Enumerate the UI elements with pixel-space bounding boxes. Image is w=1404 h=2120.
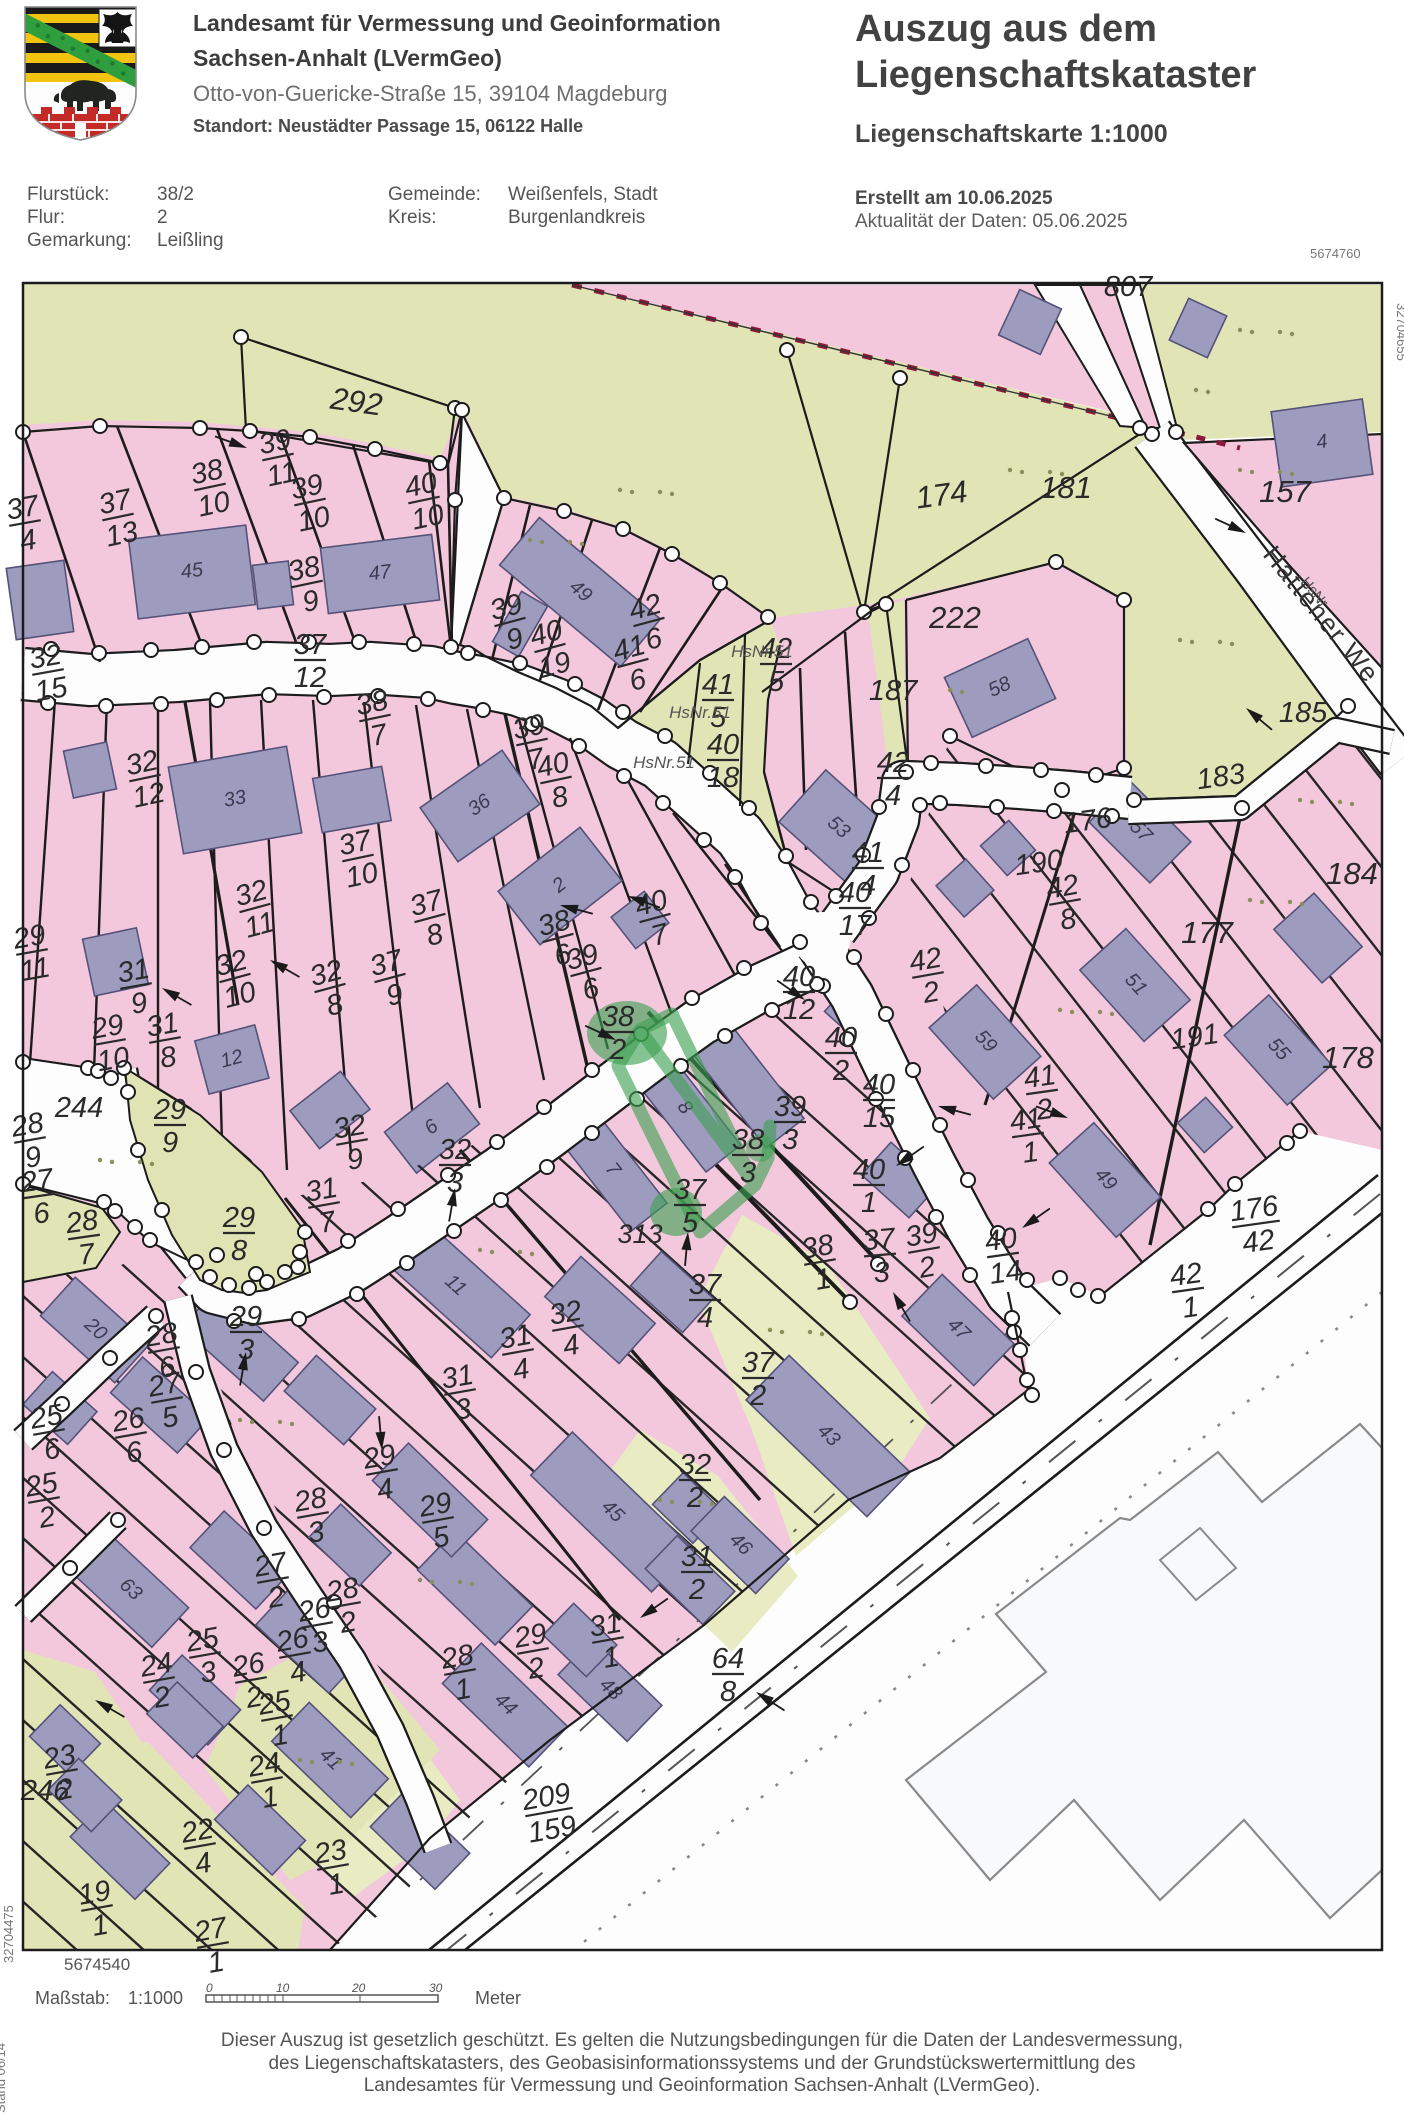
svg-text:HsNr.51: HsNr.51 [669, 703, 731, 722]
svg-text:14: 14 [987, 1255, 1023, 1291]
svg-text:2: 2 [832, 1055, 849, 1087]
svg-text:15: 15 [863, 1102, 896, 1134]
svg-text:807: 807 [1104, 271, 1154, 303]
svg-text:5: 5 [682, 1207, 699, 1239]
svg-text:10: 10 [276, 1982, 290, 1995]
svg-text:10: 10 [295, 501, 333, 539]
svg-text:37: 37 [674, 1174, 708, 1206]
svg-text:33: 33 [222, 786, 248, 812]
svg-text:31: 31 [681, 1541, 713, 1573]
svg-text:47: 47 [367, 561, 393, 586]
svg-text:64: 64 [712, 1643, 744, 1675]
svg-text:177: 177 [1181, 915, 1234, 950]
svg-text:222: 222 [928, 600, 981, 635]
svg-text:2: 2 [749, 1380, 766, 1412]
svg-text:174: 174 [913, 474, 969, 516]
svg-text:32: 32 [679, 1449, 711, 1481]
svg-text:12: 12 [294, 662, 326, 694]
svg-text:40: 40 [839, 877, 871, 909]
svg-text:3: 3 [740, 1157, 756, 1189]
svg-text:10: 10 [195, 486, 233, 524]
svg-text:3: 3 [872, 1256, 891, 1289]
svg-text:HsNr.51: HsNr.51 [633, 753, 695, 772]
svg-text:41: 41 [702, 669, 734, 701]
svg-text:8: 8 [720, 1676, 736, 1708]
svg-text:15: 15 [32, 671, 70, 708]
svg-text:3: 3 [782, 1124, 798, 1156]
svg-text:29: 29 [153, 1094, 186, 1126]
svg-text:187: 187 [869, 675, 919, 707]
svg-text:10: 10 [409, 499, 447, 537]
svg-text:8: 8 [231, 1235, 247, 1267]
svg-text:20: 20 [351, 1982, 366, 1995]
svg-text:2: 2 [686, 1482, 703, 1514]
svg-text:32: 32 [439, 1134, 471, 1166]
svg-text:10: 10 [94, 1041, 131, 1078]
svg-text:40: 40 [825, 1022, 857, 1054]
svg-text:313: 313 [617, 1219, 662, 1249]
svg-text:29: 29 [229, 1301, 262, 1333]
svg-text:37: 37 [689, 1269, 723, 1301]
svg-text:37: 37 [861, 1223, 898, 1258]
svg-text:5: 5 [768, 666, 785, 698]
svg-text:18: 18 [707, 762, 739, 794]
svg-text:184: 184 [1326, 856, 1378, 891]
svg-text:4: 4 [885, 780, 901, 812]
svg-text:0: 0 [206, 1982, 213, 1995]
svg-text:1: 1 [861, 1187, 877, 1219]
svg-text:4: 4 [697, 1302, 713, 1334]
svg-text:29: 29 [222, 1202, 255, 1234]
svg-text:157: 157 [1259, 474, 1312, 509]
svg-text:191: 191 [1169, 1018, 1221, 1056]
svg-text:244: 244 [54, 1092, 103, 1124]
svg-text:183: 183 [1195, 758, 1247, 796]
svg-text:12: 12 [130, 777, 168, 815]
svg-text:38: 38 [602, 1001, 634, 1033]
svg-text:30: 30 [429, 1982, 443, 1995]
svg-text:41: 41 [852, 837, 884, 869]
svg-text:42: 42 [1240, 1224, 1276, 1260]
svg-text:181: 181 [1040, 470, 1092, 505]
svg-text:292: 292 [327, 381, 384, 423]
svg-text:39: 39 [774, 1091, 806, 1123]
svg-text:12: 12 [783, 994, 815, 1026]
svg-text:40: 40 [853, 1154, 885, 1186]
svg-text:40: 40 [863, 1069, 895, 1101]
svg-text:2: 2 [688, 1574, 705, 1606]
svg-text:10: 10 [343, 857, 381, 895]
svg-text:17: 17 [839, 910, 873, 942]
svg-text:45: 45 [179, 559, 205, 584]
svg-text:HsNr.51: HsNr.51 [731, 642, 793, 661]
svg-text:176: 176 [1062, 802, 1115, 841]
svg-text:13: 13 [103, 516, 141, 554]
svg-text:178: 178 [1322, 1040, 1374, 1075]
svg-text:9: 9 [162, 1127, 178, 1159]
svg-text:42: 42 [877, 747, 909, 779]
svg-text:185: 185 [1279, 697, 1328, 729]
svg-text:37: 37 [742, 1347, 776, 1379]
svg-text:38: 38 [732, 1124, 764, 1156]
svg-text:37: 37 [294, 629, 328, 661]
svg-text:40: 40 [707, 729, 739, 761]
